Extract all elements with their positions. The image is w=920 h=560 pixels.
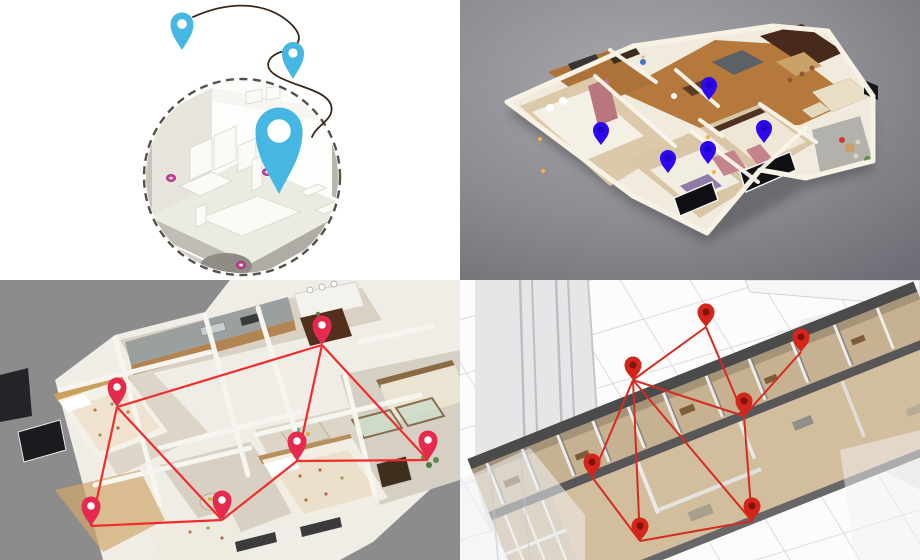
pin-hole <box>597 126 604 133</box>
person-blue <box>640 59 646 65</box>
pin-hole <box>760 124 767 131</box>
person-red <box>839 137 845 143</box>
apartment-photo <box>0 280 460 560</box>
pin-hole <box>705 81 712 88</box>
building-cutaway-scene <box>460 280 920 560</box>
sketch-route-scene <box>0 0 460 280</box>
pin-hole <box>636 522 643 529</box>
panel-apartment-red <box>0 280 460 560</box>
pin-hole <box>177 19 187 29</box>
pin-hole <box>424 436 432 444</box>
pin-hole <box>664 154 671 161</box>
panel-apartment-blue <box>460 0 920 280</box>
pin-hole <box>288 48 297 57</box>
pin-hole <box>87 502 95 510</box>
panel-sketch-route <box>0 0 460 280</box>
tv-edge <box>0 368 32 422</box>
patio-table <box>845 143 855 153</box>
location-pin-waypoint <box>282 42 304 79</box>
pin-hole <box>702 308 709 315</box>
pin-hole <box>218 496 226 504</box>
apartment-render <box>460 0 920 280</box>
plant <box>426 462 432 468</box>
pin-hole <box>293 437 301 445</box>
pin-hole <box>318 321 326 329</box>
network-edge-c-d <box>297 460 428 461</box>
pin-hole <box>588 458 595 465</box>
pin-hole <box>113 383 121 391</box>
floorplan-collage <box>0 0 920 560</box>
pin-hole <box>267 119 291 143</box>
pin-hole <box>797 333 804 340</box>
location-pin-start <box>171 13 194 51</box>
pin-hole <box>748 502 755 509</box>
pin-hole <box>704 145 711 152</box>
panel-building-cutaway <box>460 280 920 560</box>
pin-hole <box>629 361 636 368</box>
pin-hole <box>740 397 747 404</box>
